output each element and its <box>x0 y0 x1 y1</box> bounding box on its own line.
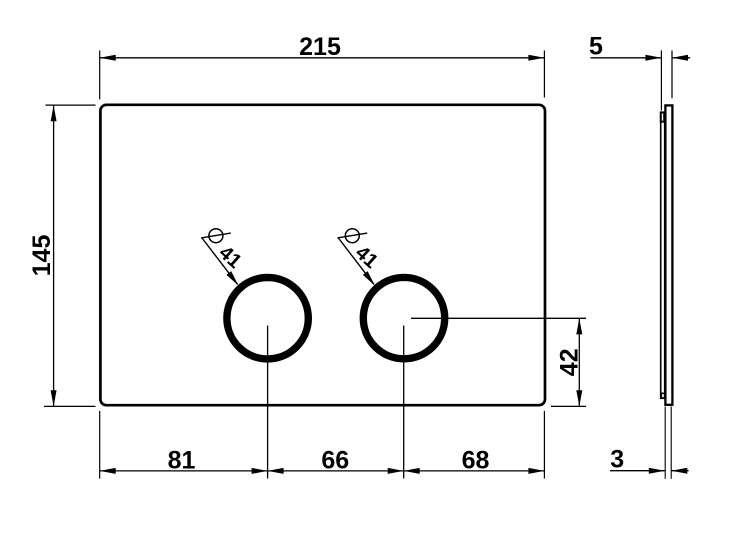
svg-text:66: 66 <box>321 447 349 475</box>
svg-text:5: 5 <box>589 33 603 61</box>
svg-text:42: 42 <box>556 348 584 376</box>
svg-text:3: 3 <box>610 446 624 474</box>
svg-text:68: 68 <box>462 447 490 475</box>
svg-text:145: 145 <box>28 235 56 277</box>
svg-text:215: 215 <box>299 33 341 61</box>
svg-text:81: 81 <box>168 447 196 475</box>
